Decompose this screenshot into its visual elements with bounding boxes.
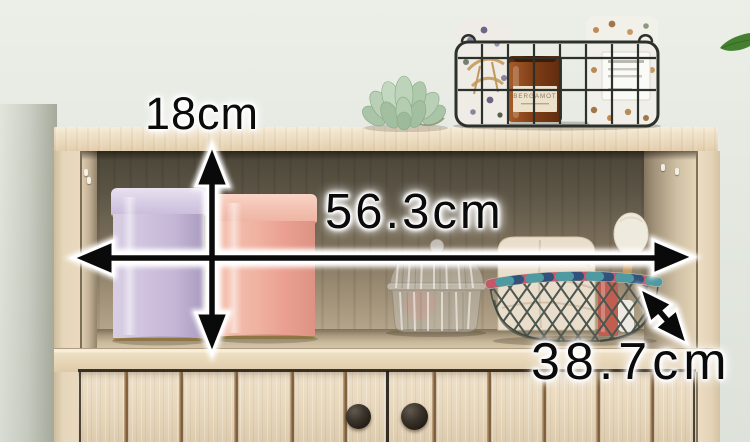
door-left-edge (79, 372, 81, 442)
lavender-tin (113, 188, 204, 341)
bag-label (602, 52, 650, 100)
raffia-bow (468, 59, 504, 86)
dried-flower-bag-left (458, 20, 512, 126)
wire-grid-basket (456, 35, 658, 126)
pink-tin (216, 194, 315, 339)
potpourri-bag-right (586, 16, 658, 126)
candle-label (513, 86, 557, 112)
basket-handle (462, 35, 652, 42)
door-groove (290, 372, 295, 442)
tin-highlight (226, 203, 242, 334)
door-groove (343, 372, 348, 442)
succulent-plant (359, 76, 449, 131)
inner-height-label: 18cm (145, 91, 259, 136)
left-door-knob (346, 404, 371, 429)
door-center-gap (386, 371, 389, 442)
depth-label: 38.7cm (531, 336, 732, 388)
shelf-pin-hole (661, 164, 665, 171)
tin-highlight (122, 197, 137, 335)
shelf-pin-hole (87, 177, 91, 184)
door-groove (124, 372, 129, 442)
inner-width-label: 56.3cm (325, 188, 504, 237)
candle-label-text: BERGAMOT (513, 93, 556, 100)
candle-jar: BERGAMOT (508, 56, 562, 122)
wall-shadow (0, 104, 57, 442)
cabinet-right-frame (696, 151, 720, 442)
green-leaf (720, 33, 750, 51)
door-groove (487, 372, 492, 442)
door-groove (432, 372, 437, 442)
shelf-ceiling-shadow (80, 151, 696, 160)
shelf-pin-hole (84, 169, 88, 176)
door-groove (179, 372, 184, 442)
right-door-knob (401, 403, 428, 430)
shelf-pin-hole (675, 168, 679, 175)
shelf-right-wall (644, 151, 696, 348)
door-groove (234, 372, 239, 442)
product-dimension-photo: BERGAMOT (0, 0, 750, 442)
